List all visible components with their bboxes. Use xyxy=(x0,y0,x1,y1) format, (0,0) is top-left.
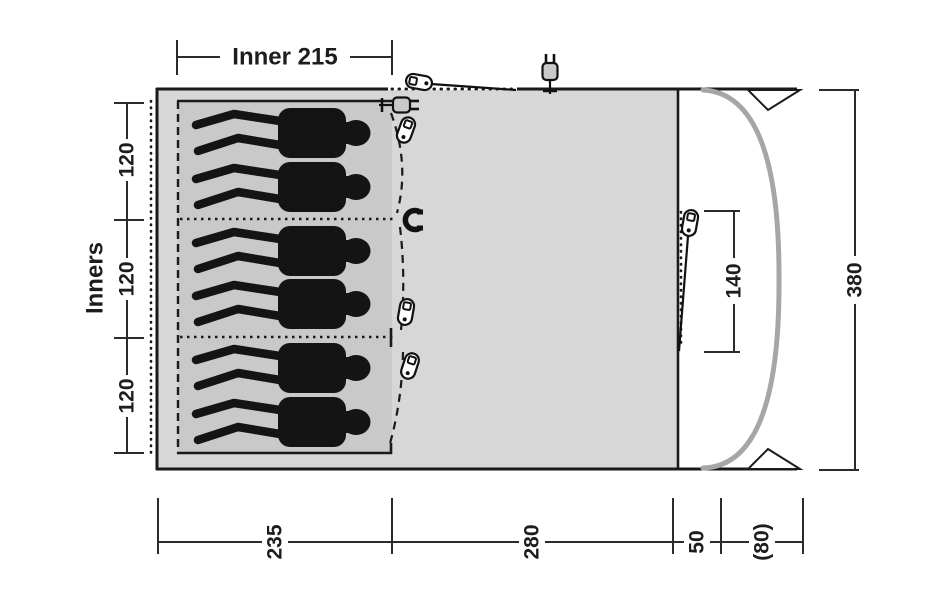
inner-depth-label-1: 120 xyxy=(116,142,139,177)
inner-depth-label-3: 120 xyxy=(116,378,139,413)
door-tieback-cord xyxy=(679,236,688,351)
bottom-dim-label-4: (80) xyxy=(751,523,774,560)
guyline-triangle-bottom xyxy=(748,449,800,469)
door-width-label: 140 xyxy=(723,263,746,298)
inner-width-label: Inner 215 xyxy=(232,44,337,71)
inners-label: Inners xyxy=(82,242,109,314)
bottom-dim-label-3: 50 xyxy=(686,530,709,553)
guyline-triangle-top xyxy=(748,90,800,110)
floorplan-canvas: Inner 215 Inners 120 120 120 140 380 xyxy=(0,0,950,600)
bottom-dim-label-2: 280 xyxy=(521,524,544,559)
bottom-dim-label-1: 235 xyxy=(264,524,287,559)
tent-floorplan-diagram: Inner 215 Inners 120 120 120 140 380 xyxy=(0,0,950,600)
inner-depth-label-2: 120 xyxy=(116,261,139,296)
toggle-icon xyxy=(405,73,433,91)
toggle-icon xyxy=(681,209,699,237)
door-tieback-cord xyxy=(431,84,516,90)
total-depth-label: 380 xyxy=(844,262,867,297)
